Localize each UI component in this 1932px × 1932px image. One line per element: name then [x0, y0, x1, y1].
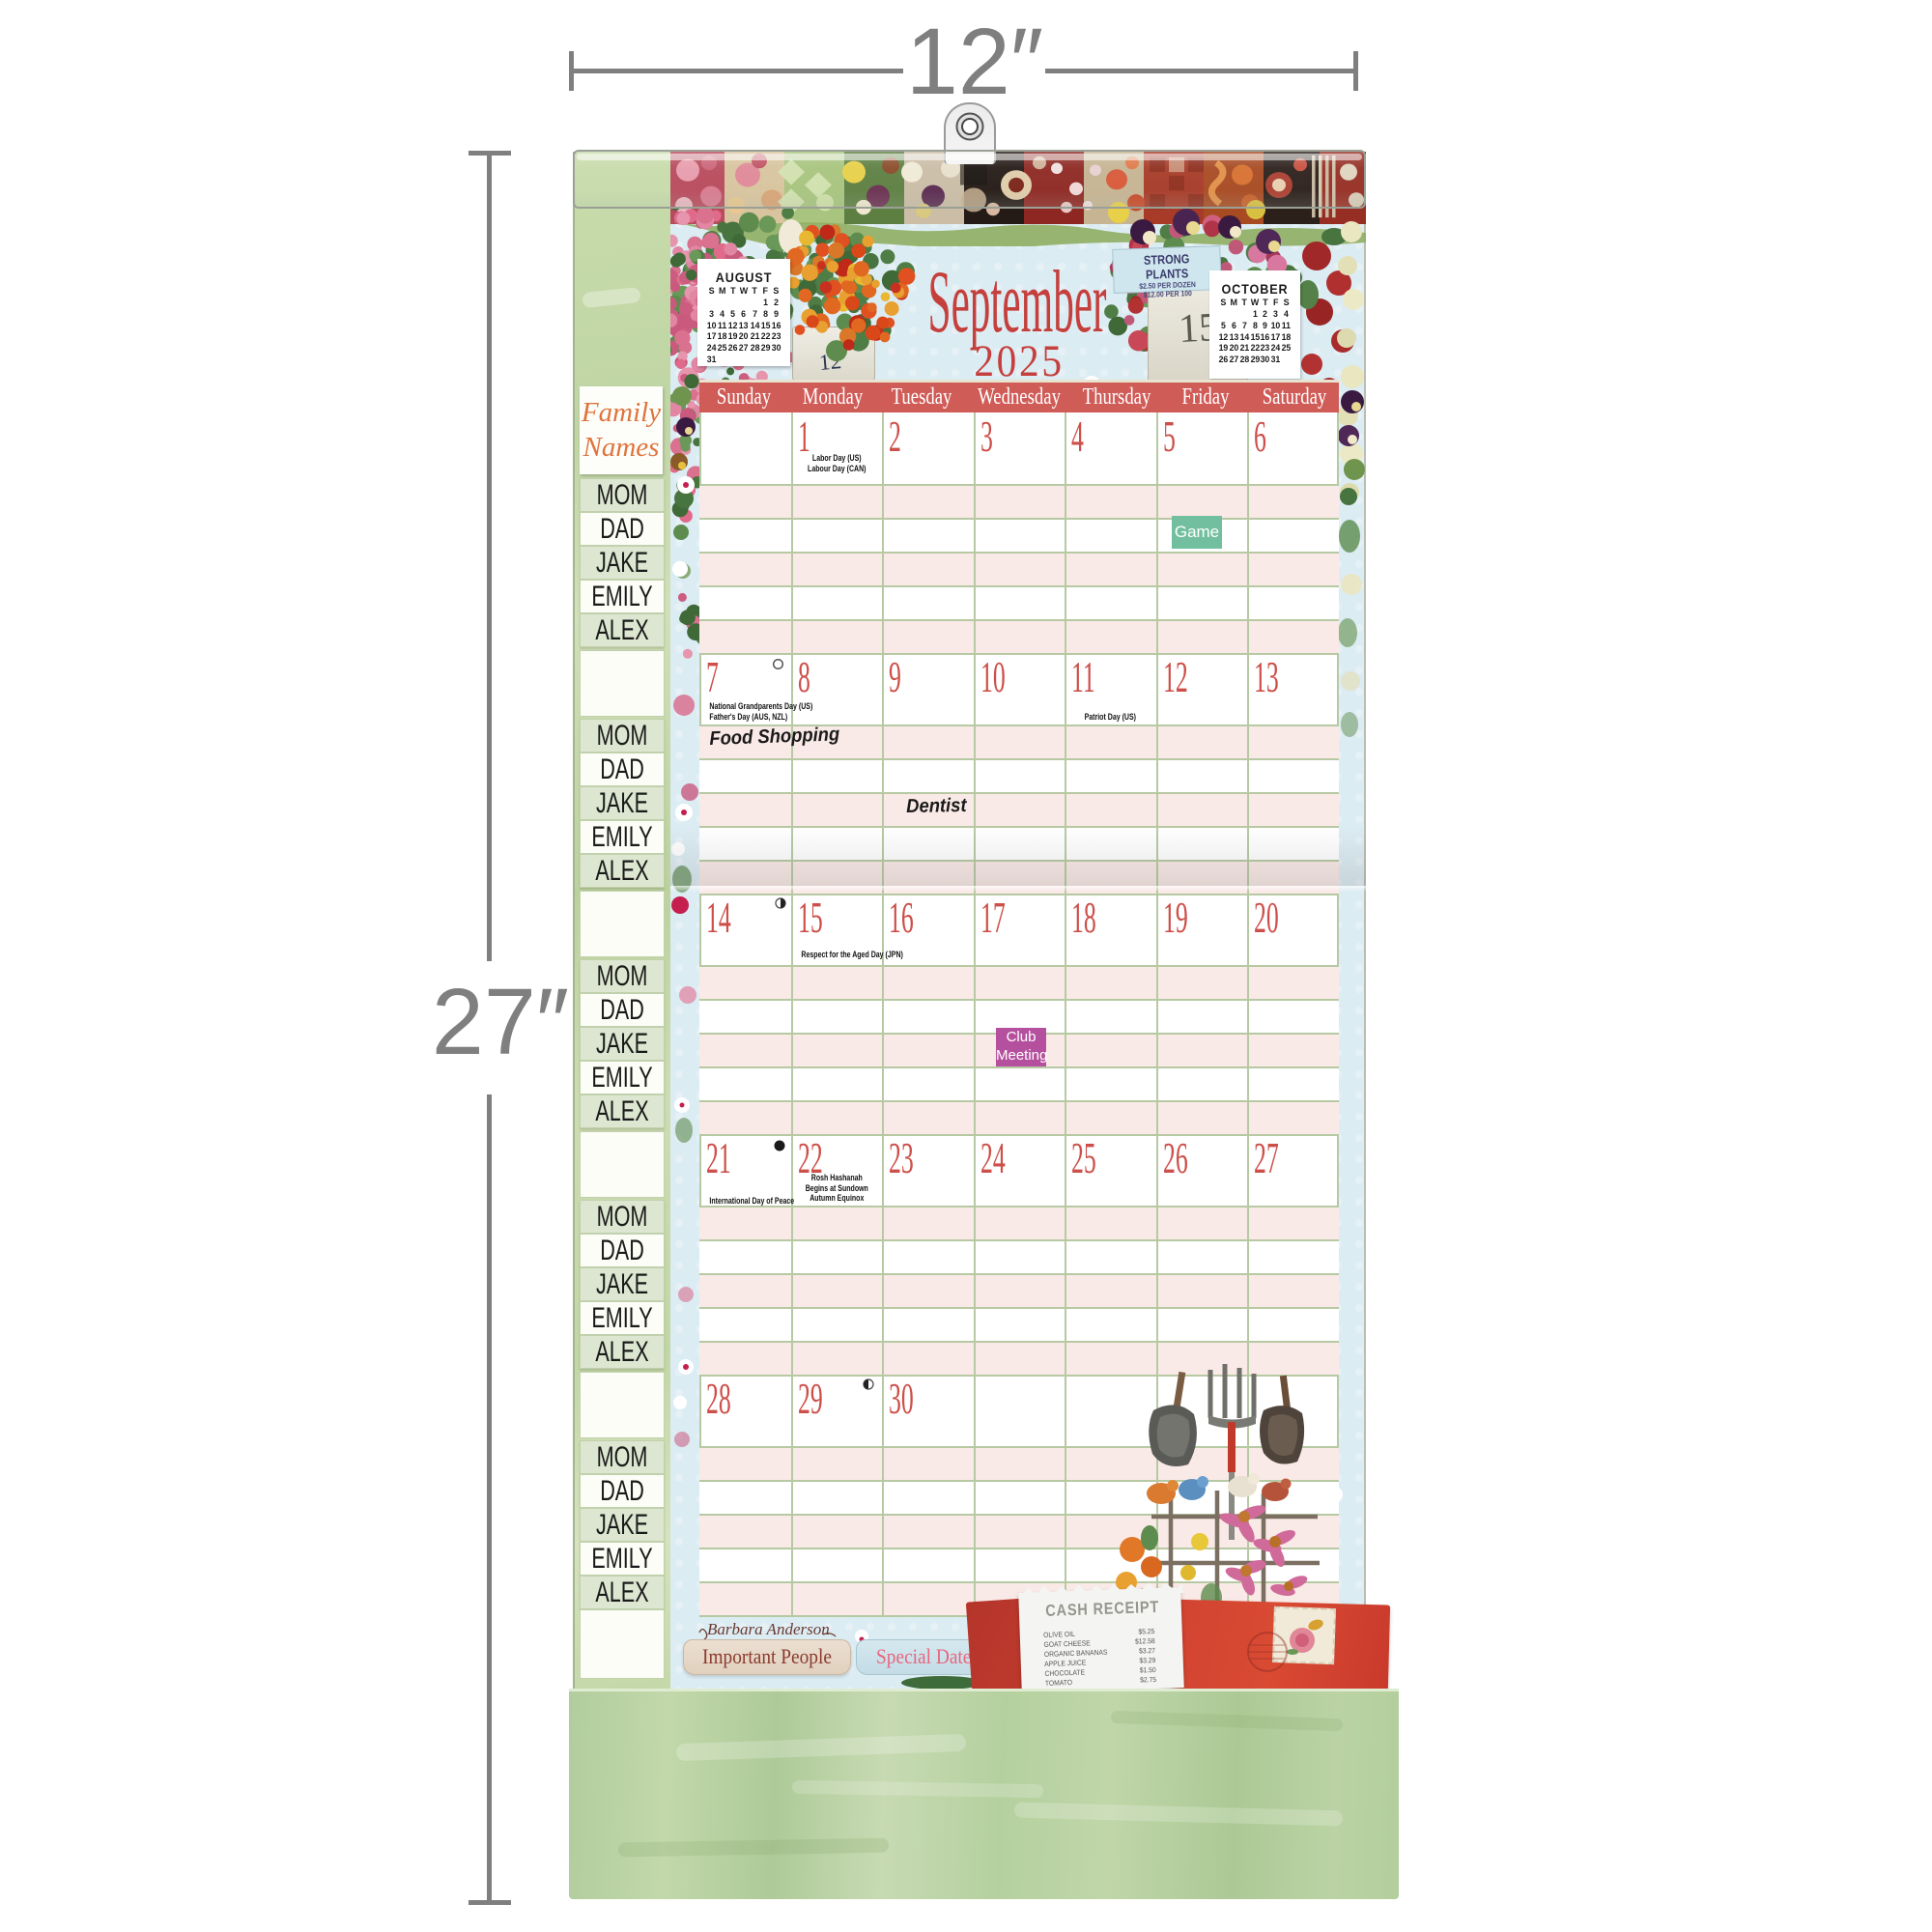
svg-text:Barbara Anderson: Barbara Anderson	[707, 1620, 830, 1638]
